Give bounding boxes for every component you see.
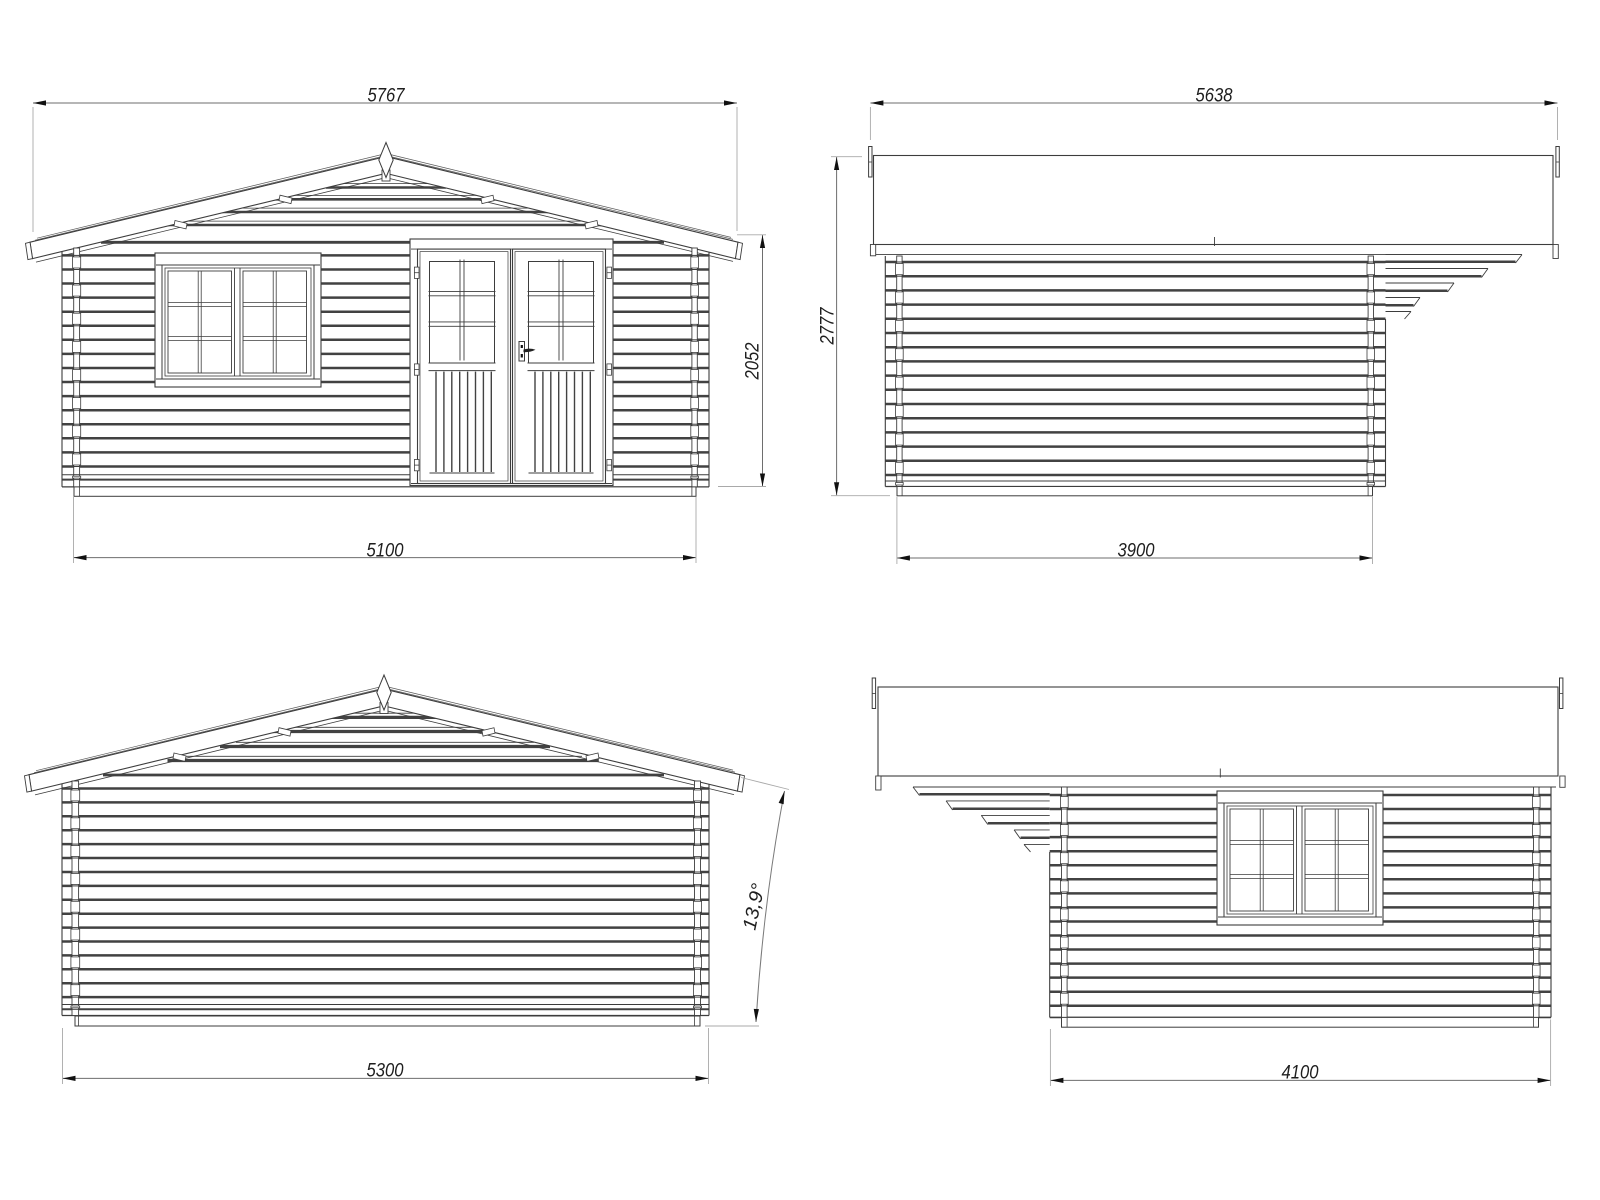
svg-text:5100: 5100: [367, 540, 404, 561]
svg-text:2052: 2052: [743, 342, 764, 380]
svg-text:2777: 2777: [818, 306, 839, 345]
